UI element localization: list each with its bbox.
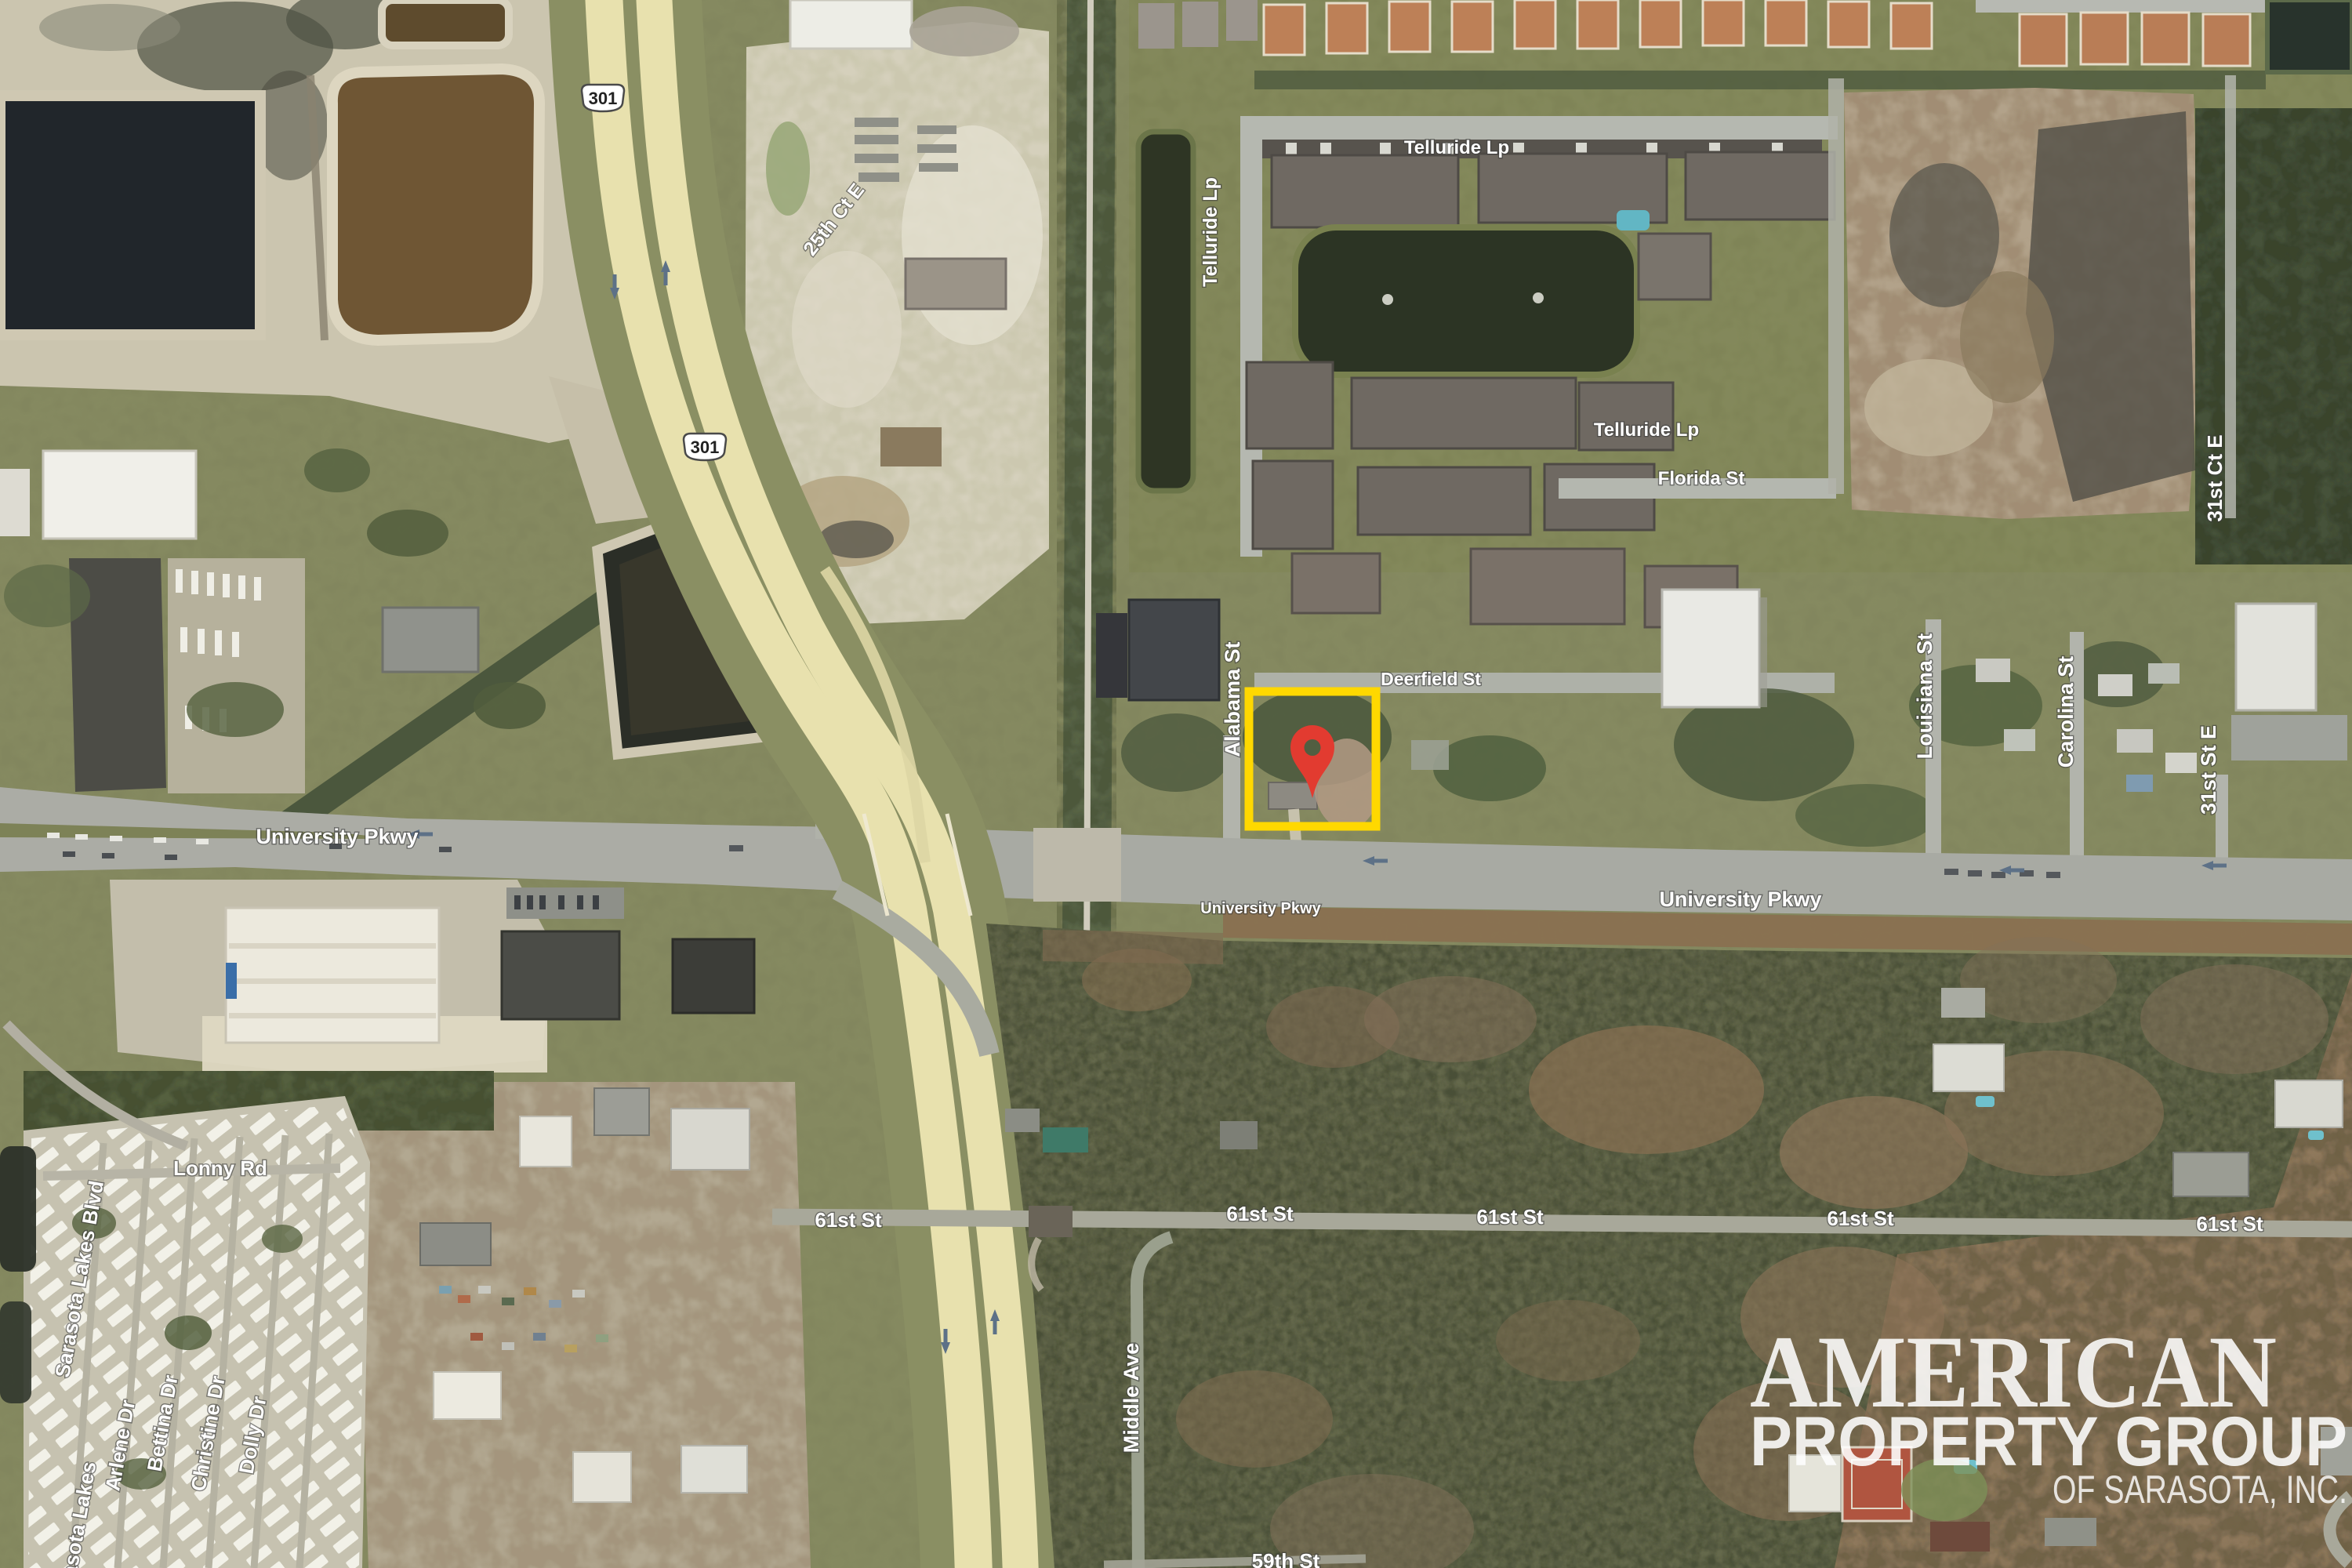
svg-text:Deerfield St: Deerfield St [1381, 669, 1481, 689]
svg-text:301: 301 [589, 89, 618, 108]
svg-text:301: 301 [691, 437, 720, 457]
svg-text:61st St: 61st St [1476, 1205, 1544, 1229]
svg-text:61st St: 61st St [815, 1208, 882, 1232]
svg-text:61st St: 61st St [1226, 1202, 1294, 1225]
svg-text:Florida St: Florida St [1658, 468, 1745, 489]
svg-text:Telluride Lp: Telluride Lp [1404, 137, 1509, 158]
svg-text:University Pkwy: University Pkwy [256, 825, 418, 848]
svg-text:31st St E: 31st St E [2197, 725, 2220, 815]
svg-text:Middle Ave: Middle Ave [1120, 1343, 1143, 1454]
svg-text:61st St: 61st St [2196, 1212, 2263, 1236]
svg-text:OF SARASOTA, INC.: OF SARASOTA, INC. [2053, 1468, 2347, 1512]
svg-text:Lonny Rd: Lonny Rd [173, 1156, 267, 1180]
svg-text:University Pkwy: University Pkwy [1659, 887, 1821, 911]
svg-text:59th St: 59th St [1252, 1549, 1320, 1568]
svg-text:University Pkwy: University Pkwy [1200, 900, 1321, 917]
svg-text:Telluride Lp: Telluride Lp [1594, 419, 1699, 441]
svg-text:Louisiana St: Louisiana St [1913, 633, 1936, 760]
svg-text:61st St: 61st St [1827, 1207, 1894, 1230]
svg-text:Alabama St: Alabama St [1221, 641, 1244, 757]
svg-text:Carolina St: Carolina St [2054, 656, 2078, 768]
svg-text:Telluride Lp: Telluride Lp [1200, 177, 1221, 287]
svg-text:31st Ct E: 31st Ct E [2203, 434, 2227, 521]
